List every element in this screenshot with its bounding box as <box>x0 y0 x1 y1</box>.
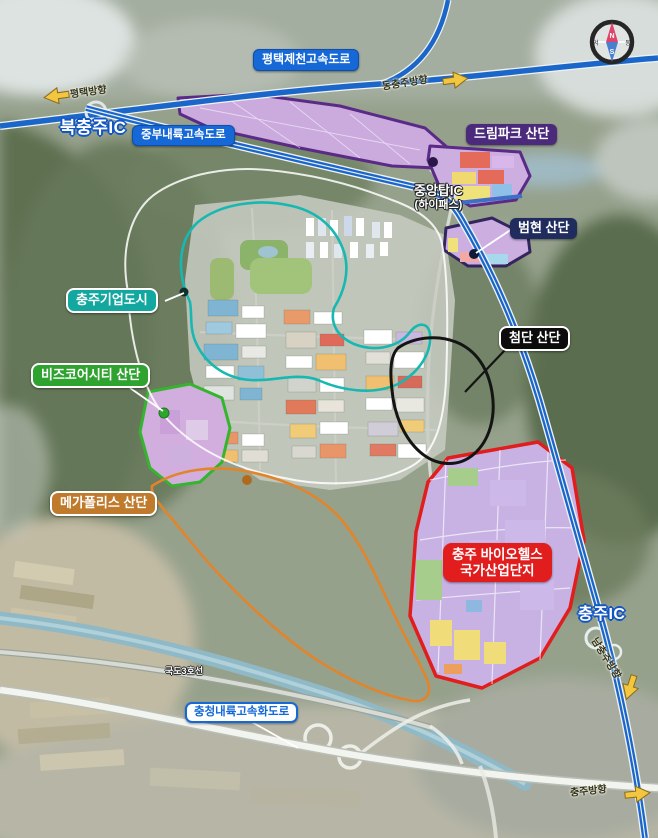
compass-north-letter: N <box>609 33 614 40</box>
label-bizcore: 비즈코어시티 산단 <box>31 363 150 388</box>
label-jungangtap-ic: 중앙탑IC (하이패스) <box>414 184 463 212</box>
jungangtap-ic-name: 중앙탑IC <box>414 183 463 198</box>
compass-west-letter: 서 <box>593 39 599 47</box>
jungangtap-ic-sub: (하이패스) <box>414 199 463 212</box>
label-dream-park: 드림파크 산단 <box>466 124 557 145</box>
compass-south-letter: S <box>610 49 615 56</box>
label-enterprise-city: 충주기업도시 <box>66 288 158 313</box>
beomhyeon-dot <box>469 249 479 259</box>
label-beomhyeon: 범현 산단 <box>510 218 577 239</box>
compass-icon: N S 서 동 <box>586 16 638 68</box>
dream-park-dot <box>428 157 438 167</box>
label-megapolis: 메가폴리스 산단 <box>50 491 157 516</box>
aerial-map: 평택제천고속도로 중부내륙고속도로 충청내륙고속화도로 국도3호선 북충주IC … <box>0 0 658 838</box>
label-national-route-3: 국도3호선 <box>165 666 203 676</box>
compass-east-letter: 동 <box>625 40 631 47</box>
biohealth-line2: 국가산업단지 <box>452 563 543 579</box>
label-chungcheong-naeryuk-expressway: 충청내륙고속화도로 <box>185 702 298 723</box>
label-pyeongtaek-jecheon-expressway: 평택제천고속도로 <box>253 49 359 71</box>
label-north-chungju-ic: 북충주IC <box>60 118 126 138</box>
label-biohealth: 충주 바이오헬스 국가산업단지 <box>443 543 552 582</box>
label-chungju-ic: 충주IC <box>578 606 625 624</box>
label-jungbu-naeryuk-expressway: 중부내륙고속도로 <box>132 125 235 146</box>
megapolis-dot <box>242 475 252 485</box>
label-cheomdan: 첨단 산단 <box>499 326 570 351</box>
biohealth-line1: 충주 바이오헬스 <box>452 547 543 563</box>
